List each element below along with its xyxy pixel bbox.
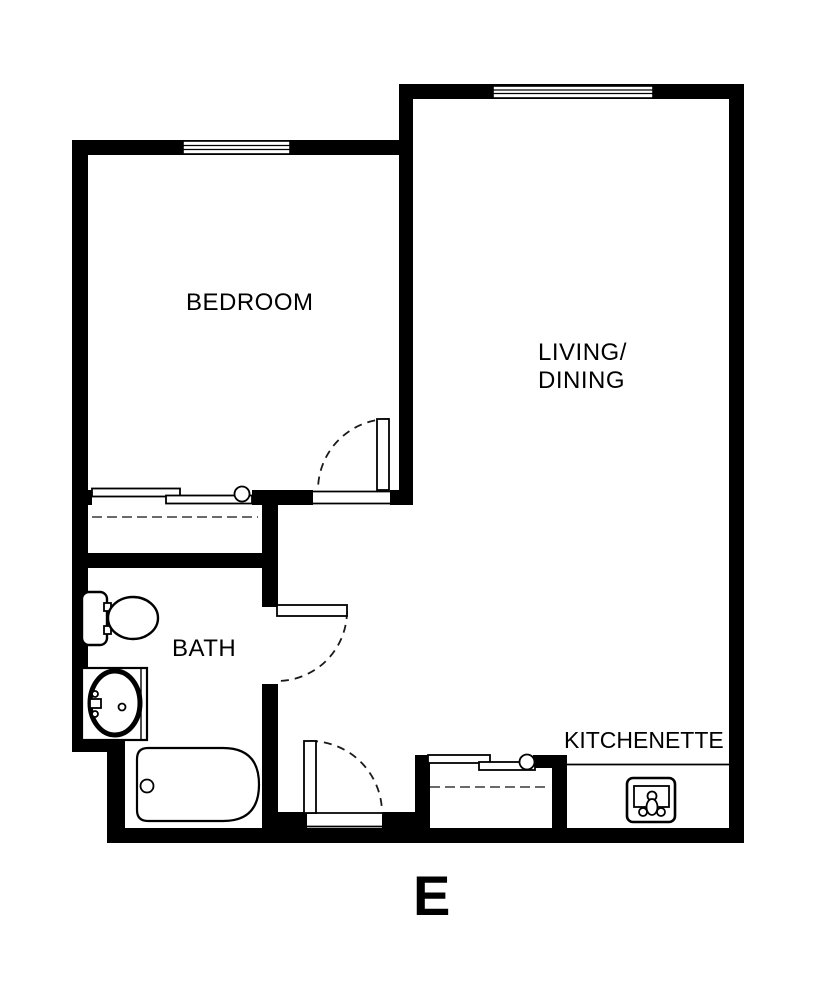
door-thresholds (307, 492, 390, 827)
entry-wall-left (278, 812, 307, 828)
bedroom-living-divider-wall (399, 84, 413, 505)
bottom-exterior-wall (107, 828, 744, 843)
bedroom-bottom-wall-mid (252, 490, 313, 505)
sliding-door-knob-icon (235, 487, 250, 502)
floor-plan: BEDROOM LIVING/ DINING BATH KITCHENETTE … (0, 0, 815, 998)
bedroom-label: BEDROOM (186, 289, 314, 317)
kitchen-sink-icon (627, 778, 675, 822)
closet-bath-wall (72, 553, 278, 568)
floor-plan-drawing (0, 0, 815, 998)
bedroom-closet (92, 487, 258, 518)
kitchenette-area (567, 765, 729, 823)
bath-label: BATH (172, 635, 236, 663)
entry-closet-head-block (533, 755, 567, 768)
bedroom-door-icon (318, 419, 389, 490)
bath-door-icon (277, 605, 347, 681)
window-bedroom-icon (183, 141, 290, 154)
living-dining-label: LIVING/ DINING (538, 339, 627, 395)
bath-right-wall-upper (262, 505, 278, 607)
sliding-door-knob-icon (520, 755, 535, 770)
swing-doors (277, 419, 389, 813)
kitchenette-label: KITCHENETTE (564, 727, 724, 754)
toilet-icon (82, 592, 158, 645)
unit-letter-label: E (413, 863, 450, 928)
window-living-icon (493, 86, 653, 98)
entry-closet-left-wall (415, 755, 430, 828)
vanity-sink-icon (82, 668, 147, 740)
entry-door-icon (304, 741, 382, 813)
left-exterior-wall (72, 140, 88, 752)
bedroom-bottom-wall-right (390, 490, 413, 505)
bath-right-wall-lower (262, 684, 278, 828)
living-dining-label-line1: LIVING/ (538, 339, 627, 367)
entry-closet (428, 755, 550, 788)
right-exterior-wall (729, 84, 744, 843)
bathtub-icon (137, 748, 259, 821)
bedroom-bottom-wall-left (72, 490, 92, 505)
entry-wall-right (382, 812, 415, 828)
living-dining-label-line2: DINING (538, 367, 627, 395)
